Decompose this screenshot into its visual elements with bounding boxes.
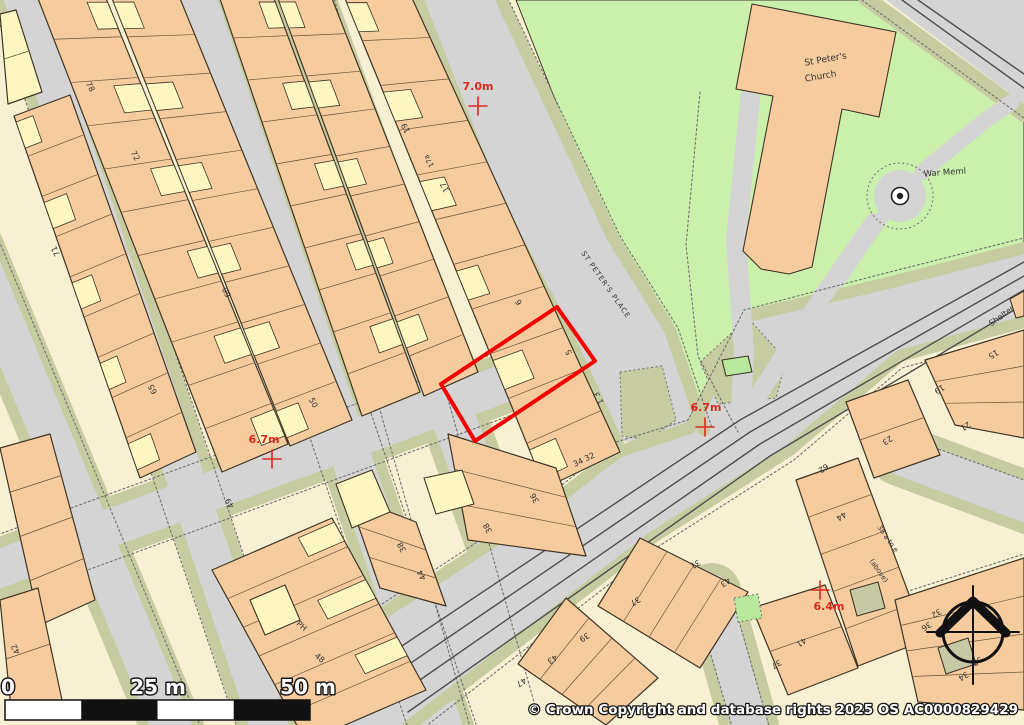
scalebar-label-25: 25 m xyxy=(130,675,186,699)
map-viewport: 7872716560504942PH481917a17651 334 32363… xyxy=(0,0,1024,725)
scalebar-segment xyxy=(158,700,234,720)
location-plan-map: 7872716560504942PH481917a17651 334 32363… xyxy=(0,0,1024,725)
war-memorial-dot xyxy=(897,193,903,199)
scalebar-label-50: 50 m xyxy=(280,675,336,699)
scalebar-label-0: 0 xyxy=(1,675,15,699)
scalebar-segment xyxy=(234,700,310,720)
spot-height-label: 7.0m xyxy=(463,80,494,93)
garden-patch xyxy=(734,594,762,622)
spot-height-label: 6.7m xyxy=(691,401,722,414)
scalebar-segment xyxy=(81,700,157,720)
scalebar-segment xyxy=(5,700,81,720)
shrub-patch xyxy=(722,356,752,376)
copyright-notice: © Crown Copyright and database rights 20… xyxy=(528,702,1018,718)
spot-height-label: 6.7m xyxy=(249,433,280,446)
spot-height-label: 6.4m xyxy=(814,600,845,613)
